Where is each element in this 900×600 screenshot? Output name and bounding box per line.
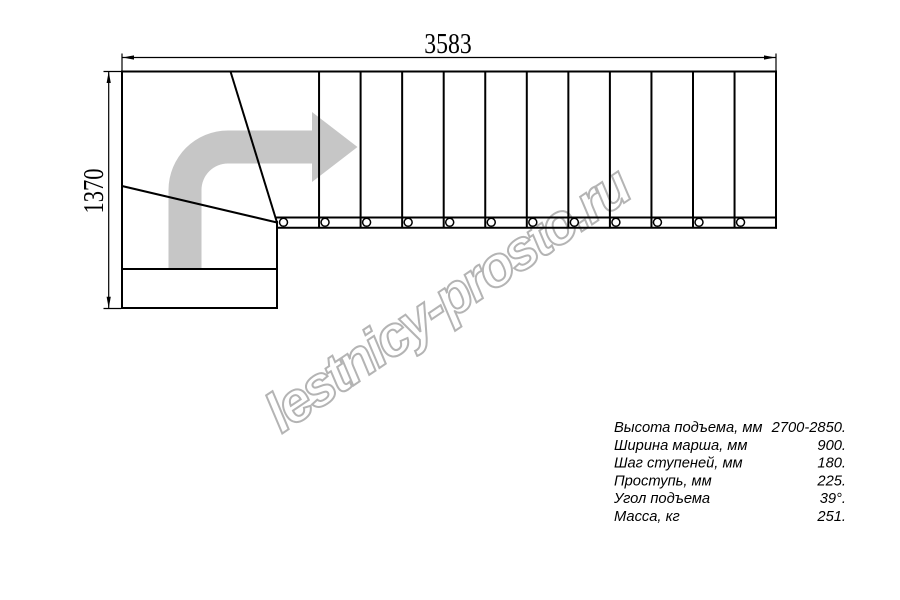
svg-text:Шаг ступеней, мм: Шаг ступеней, мм: [614, 456, 743, 472]
svg-text:900.: 900.: [817, 438, 846, 454]
svg-text:251.: 251.: [816, 509, 846, 525]
svg-text:Высота подъема, мм: Высота подъема, мм: [614, 420, 762, 436]
svg-text:3583: 3583: [424, 28, 472, 60]
svg-text:225.: 225.: [816, 473, 846, 489]
svg-text:39°.: 39°.: [820, 491, 846, 507]
svg-text:Ширина марша, мм: Ширина марша, мм: [614, 438, 747, 454]
svg-text:Масса, кг: Масса, кг: [614, 509, 680, 525]
svg-text:Угол подъема: Угол подъема: [613, 491, 710, 507]
svg-text:2700-2850.: 2700-2850.: [771, 420, 846, 436]
svg-text:Проступь, мм: Проступь, мм: [614, 473, 712, 489]
svg-text:1370: 1370: [78, 169, 110, 214]
svg-text:180.: 180.: [817, 456, 846, 472]
